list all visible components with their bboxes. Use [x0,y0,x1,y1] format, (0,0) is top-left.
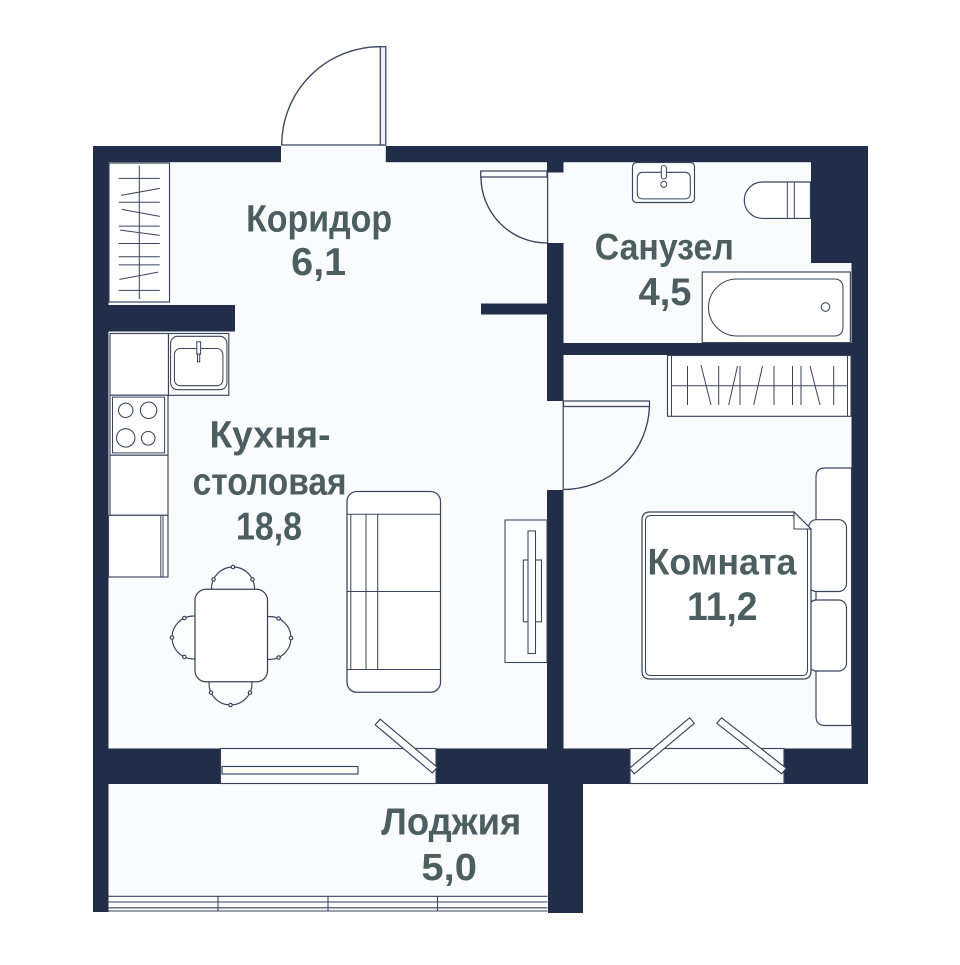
svg-text:Коридор: Коридор [246,199,392,241]
svg-text:5,0: 5,0 [421,847,477,889]
svg-text:6,1: 6,1 [291,241,346,284]
svg-text:4,5: 4,5 [639,271,692,314]
svg-text:Санузел: Санузел [595,227,734,268]
svg-text:18,8: 18,8 [236,506,302,549]
svg-text:11,2: 11,2 [687,585,758,629]
svg-text:столовая: столовая [193,461,347,503]
svg-text:Комната: Комната [648,540,798,582]
svg-text:Кухня-: Кухня- [210,415,331,457]
svg-text:Лоджия: Лоджия [381,802,521,844]
